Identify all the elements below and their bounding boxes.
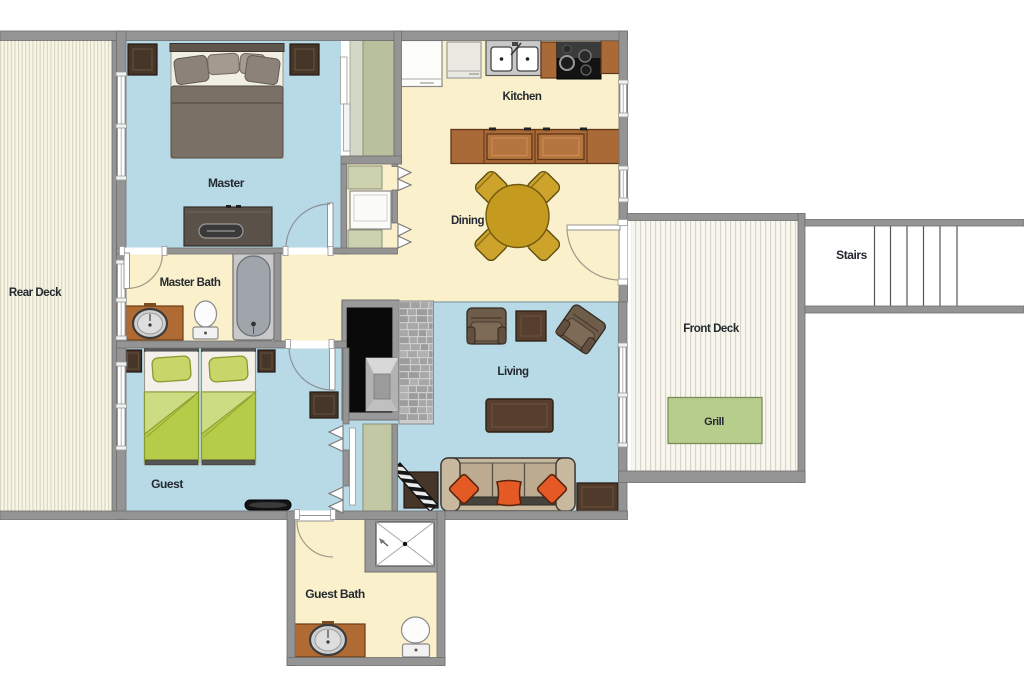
svg-text:Guest: Guest: [151, 477, 183, 491]
svg-text:Dining: Dining: [451, 215, 484, 227]
svg-text:Master Bath: Master Bath: [160, 277, 221, 289]
svg-text:Guest Bath: Guest Bath: [305, 587, 365, 601]
svg-text:Master: Master: [208, 176, 245, 190]
svg-text:Stairs: Stairs: [836, 248, 867, 262]
svg-text:Grill: Grill: [704, 416, 724, 428]
svg-text:Rear Deck: Rear Deck: [9, 287, 62, 299]
svg-text:Front Deck: Front Deck: [683, 323, 740, 335]
svg-text:Kitchen: Kitchen: [502, 91, 541, 103]
svg-text:Living: Living: [497, 366, 529, 378]
